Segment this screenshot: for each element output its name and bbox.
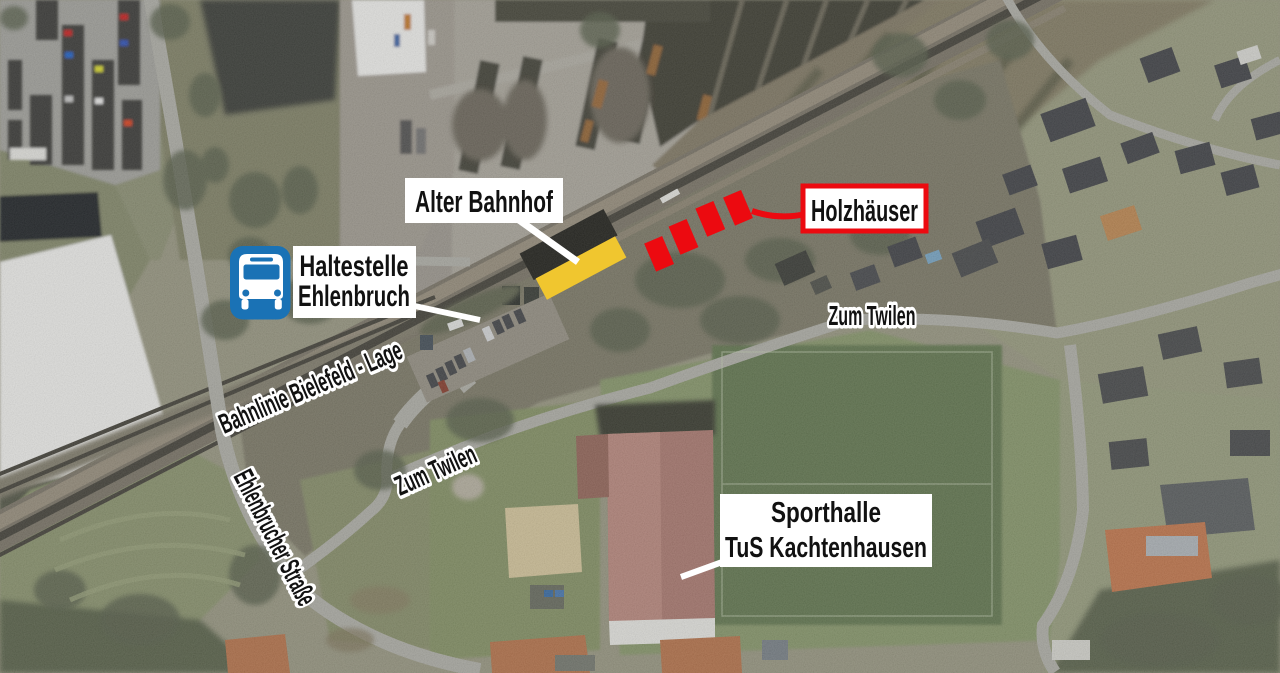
- svg-text:Haltestelle: Haltestelle: [300, 250, 409, 283]
- svg-text:Holzhäuser: Holzhäuser: [811, 193, 918, 228]
- svg-text:Alter Bahnhof: Alter Bahnhof: [415, 184, 553, 219]
- svg-text:TuS Kachtenhausen: TuS Kachtenhausen: [725, 532, 927, 564]
- svg-text:Ehlenbruch: Ehlenbruch: [298, 280, 410, 313]
- svg-text:Zum Twilen: Zum Twilen: [829, 300, 916, 331]
- svg-text:Sporthalle: Sporthalle: [771, 497, 881, 529]
